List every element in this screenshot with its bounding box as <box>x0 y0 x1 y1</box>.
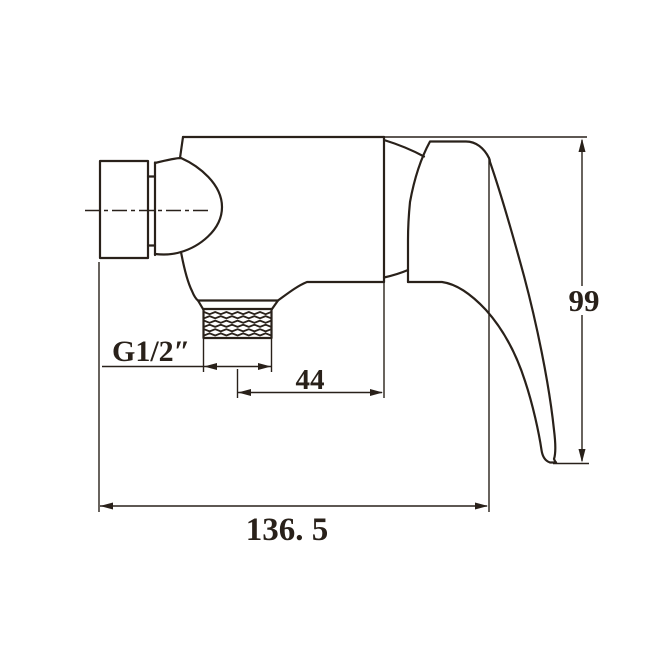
arrowhead-99-top <box>579 139 586 153</box>
arrowheads <box>100 139 586 510</box>
arrowhead-thread-left <box>204 363 217 370</box>
arrowhead-thread-right <box>258 363 271 370</box>
shower-mixer-dimension-drawing: G1/2″ 44 99 136. 5 <box>0 0 650 650</box>
dimension-labels: G1/2″ 44 99 136. 5 <box>112 283 600 548</box>
outlet-flange-plate <box>198 301 278 310</box>
height-label: 99 <box>569 283 600 318</box>
handle-tail-outline <box>408 282 556 463</box>
handle-cap-arc-bottom <box>384 270 408 278</box>
thread-size-label: G1/2″ <box>112 335 190 368</box>
technical-drawing-page: G1/2″ 44 99 136. 5 <box>0 0 650 650</box>
faucet-outline-group <box>85 137 556 463</box>
overall-length-label: 136. 5 <box>246 512 329 548</box>
body-bottom-left-edge <box>181 252 198 301</box>
body-left-edge <box>180 137 183 158</box>
arrowhead-99-bottom <box>579 449 586 463</box>
body-bottom-edge <box>278 282 384 301</box>
arrowhead-44-right <box>370 389 383 396</box>
arrowhead-44-left <box>238 389 251 396</box>
outlet-offset-label: 44 <box>296 364 325 396</box>
extension-lines <box>99 137 589 512</box>
dimension-lines <box>100 140 582 506</box>
arrowhead-136-left <box>100 503 113 510</box>
valve-cap-dome <box>155 158 222 254</box>
wall-flange <box>100 161 148 258</box>
outlet-thread-ridges <box>204 312 271 336</box>
arrowhead-136-right <box>475 503 488 510</box>
handle-cap-arc-top <box>384 140 424 157</box>
